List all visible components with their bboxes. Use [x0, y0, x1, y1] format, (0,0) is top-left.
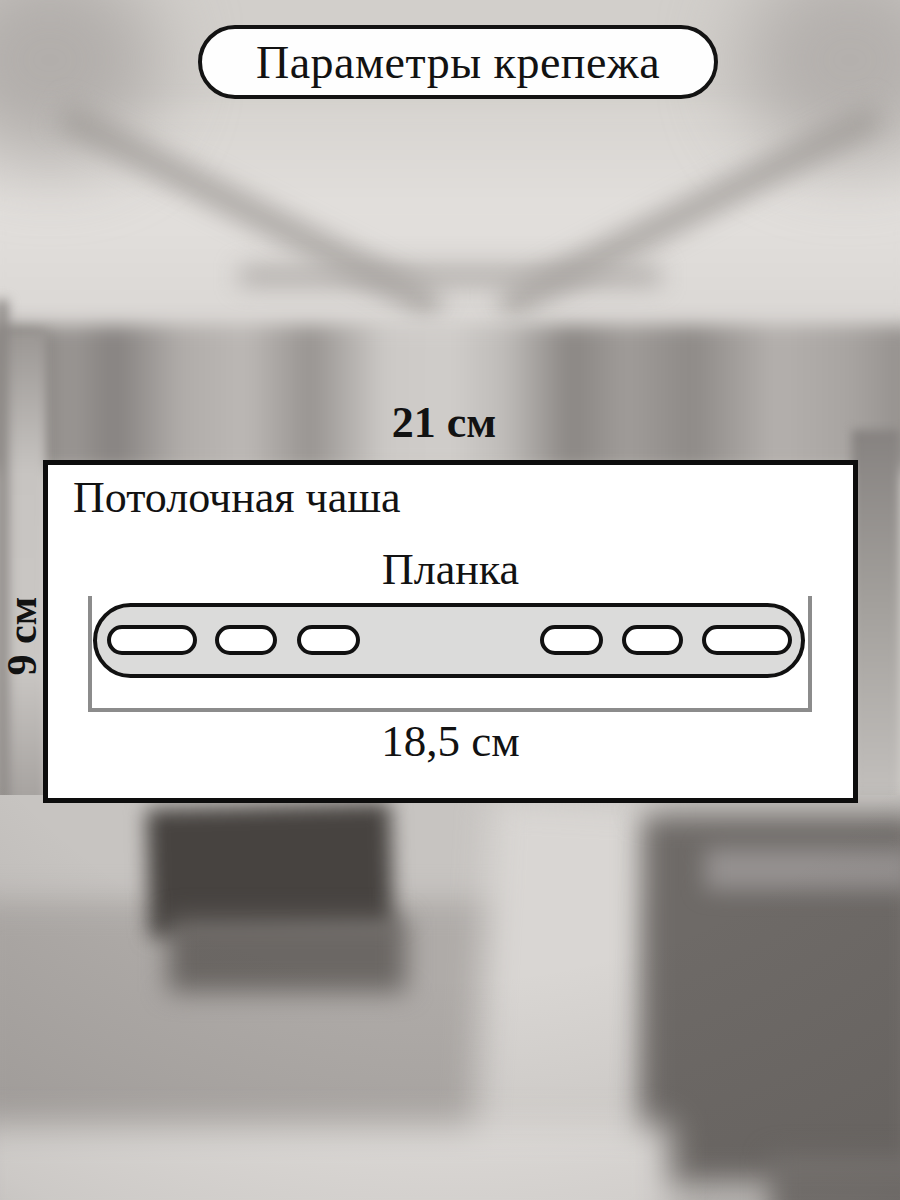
dimension-height-9cm: 9 см — [0, 566, 43, 706]
page-title: Параметры крепежа — [256, 36, 660, 89]
strip-hole — [702, 625, 792, 655]
infographic: Параметры крепежа 21 см 9 см Потолочная … — [0, 0, 900, 1200]
strip-hole — [107, 625, 197, 655]
strip-hole — [540, 625, 603, 655]
strip-hole — [297, 625, 360, 655]
strip-hole — [622, 625, 683, 655]
diagram-panel: Потолочная чаша Планка 18,5 см — [43, 460, 858, 803]
measure-bracket-bottom — [88, 708, 812, 712]
dimension-width-21cm: 21 см — [294, 399, 594, 447]
ceiling-bowl-label: Потолочная чаша — [73, 473, 401, 524]
mounting-strip-label: Планка — [48, 545, 853, 596]
dimension-length-18-5cm: 18,5 см — [48, 716, 853, 768]
measure-bracket-right — [808, 596, 812, 712]
title-pill: Параметры крепежа — [198, 25, 718, 99]
diagram-layer: Параметры крепежа 21 см 9 см Потолочная … — [0, 0, 900, 1200]
mounting-strip-drawing — [93, 603, 805, 678]
strip-hole — [215, 625, 277, 655]
measure-bracket-left — [88, 596, 92, 712]
